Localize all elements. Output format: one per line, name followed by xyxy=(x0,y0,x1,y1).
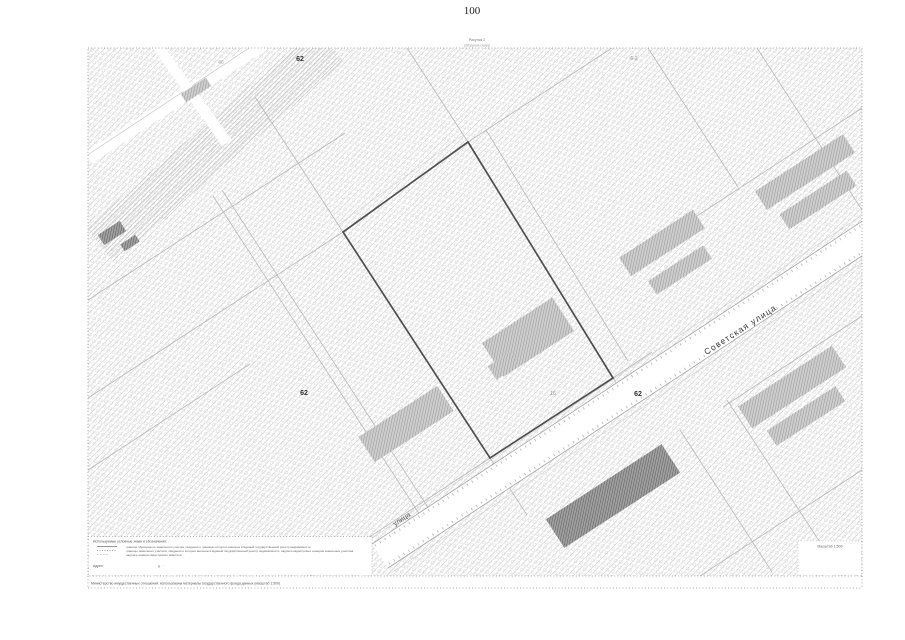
legend-title: Используемые условные знаки и обозначени… xyxy=(93,540,167,544)
scanned-document-page: 100 Рисунок 2 (Обзорная схема) xyxy=(0,0,905,640)
cadastral-map: 100 Рисунок 2 (Обзорная схема) xyxy=(0,0,905,640)
figure-caption-title: Рисунок 2 xyxy=(469,38,486,42)
scale-note: Масштаб 1:500 xyxy=(817,545,842,549)
house-number-top: 62 xyxy=(296,56,304,63)
house-number-left: 62 xyxy=(300,390,308,397)
house-number-road: 62 xyxy=(634,391,642,398)
figure-caption-subtitle: (Обзорная схема) xyxy=(464,44,490,48)
faint-number-top-left: 46 xyxy=(218,60,224,66)
legend-address-label: Адрес xyxy=(93,564,103,568)
page-number: 100 xyxy=(464,5,481,17)
legend-box: Используемые условные знаки и обозначени… xyxy=(88,537,372,577)
legend-address-dots: д. · · xyxy=(158,564,165,568)
footer-note: Министерство имущественных отношений: ис… xyxy=(91,582,280,586)
faint-parcel-number: 16 xyxy=(550,391,556,397)
legend-item-text: надпись номера кадастрового квартала xyxy=(126,553,182,557)
faint-number-top-right: 6-2 xyxy=(630,56,637,62)
scale-box: Масштаб 1:500 xyxy=(798,541,861,575)
